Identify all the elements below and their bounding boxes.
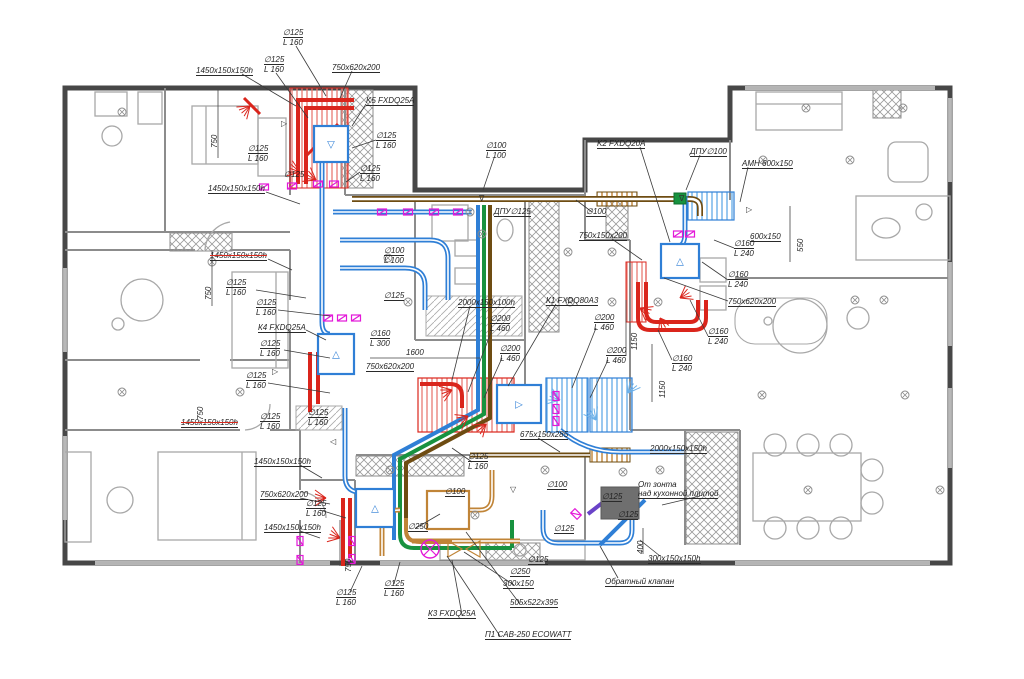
leader-line	[447, 556, 500, 636]
duct-run	[467, 470, 492, 510]
duct-core	[340, 268, 425, 310]
unit-k1: ▷	[497, 385, 541, 423]
duct-valve	[571, 509, 582, 520]
leader-line	[350, 566, 362, 592]
ceiling-light	[118, 108, 126, 116]
leader-line	[256, 290, 306, 298]
svg-text:▷: ▷	[746, 205, 753, 214]
ceiling-light	[541, 466, 549, 474]
ceiling-light	[802, 104, 810, 112]
unit-glyph: △	[332, 350, 340, 361]
air-diffuser-spray	[236, 100, 255, 119]
unit-glyph: ▽	[327, 140, 335, 151]
leader-line	[300, 465, 322, 478]
ceiling-light	[901, 391, 909, 399]
ceiling-light	[654, 298, 662, 306]
ceiling-light	[759, 156, 767, 164]
duct-valve	[260, 184, 269, 190]
ceiling-light	[564, 248, 572, 256]
leader-line	[452, 560, 462, 615]
unit-glyph: △	[371, 504, 379, 515]
duct-valve	[338, 315, 347, 321]
leader-line	[686, 155, 700, 190]
air-diffuser-spray	[315, 490, 326, 506]
ceiling-light	[851, 296, 859, 304]
kitchen-hood	[601, 193, 686, 519]
leader-line	[266, 192, 300, 204]
leader-line	[702, 262, 728, 280]
svg-text:◁: ◁	[330, 437, 337, 446]
leader-line	[483, 158, 494, 190]
leader-line	[740, 167, 748, 202]
ceiling-light	[880, 296, 888, 304]
leader-line	[714, 240, 734, 248]
ceiling-light	[566, 298, 574, 306]
unit-k5: ▽	[314, 126, 348, 162]
ceiling-light	[384, 254, 392, 262]
duct-valve	[674, 231, 683, 237]
svg-text:▷: ▷	[272, 367, 279, 376]
unit-k3: △	[356, 489, 394, 527]
hvac-floor-plan: ▽△▷△△ ▷ ▷ ◁ ▽ ▷ ∇ ∇ ∅125L 160∅125L 16014…	[0, 0, 1024, 679]
unit-glyph: ▷	[515, 400, 523, 411]
leader-line	[612, 239, 642, 260]
leader-line	[658, 330, 672, 360]
ceiling-light	[404, 298, 412, 306]
ceiling-light	[846, 156, 854, 164]
ceiling-light	[656, 466, 664, 474]
svg-text:∇: ∇	[678, 194, 685, 203]
unit-p1	[427, 491, 469, 529]
duct-run	[340, 268, 425, 310]
ceiling-light	[619, 468, 627, 476]
ceiling-light	[608, 298, 616, 306]
ceiling-light	[936, 486, 944, 494]
ceiling-light	[758, 391, 766, 399]
svg-text:▽: ▽	[510, 485, 517, 494]
leader-line	[268, 259, 292, 270]
svg-text:∇: ∇	[478, 194, 485, 203]
unit-k2: △	[661, 244, 699, 278]
ceiling-light	[118, 388, 126, 396]
leader-line	[538, 438, 560, 452]
ceiling-light	[804, 486, 812, 494]
leader-line	[640, 147, 670, 242]
ceiling-light	[236, 388, 244, 396]
ceiling-light	[608, 248, 616, 256]
unit-k4: △	[318, 334, 354, 374]
unit-glyph: △	[676, 257, 684, 268]
floor-plan-canvas: ▽△▷△△ ▷ ▷ ◁ ▽ ▷ ∇ ∇	[0, 0, 1024, 679]
leader-line	[268, 383, 330, 393]
duct-valve	[352, 315, 361, 321]
svg-text:▷: ▷	[281, 119, 288, 128]
